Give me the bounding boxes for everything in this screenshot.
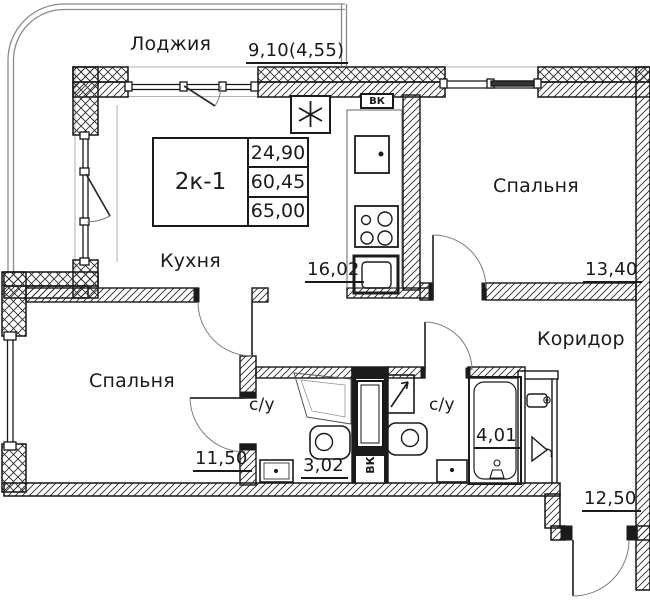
bedroom-right-area: 13,40 [583,259,642,283]
bedroom-right-label: Спальня [493,175,579,197]
shower-tray-icon [386,375,414,413]
switchboard-icon [527,394,550,407]
toilet-right-icon [387,423,427,455]
bedroom-left-area: 11,50 [193,448,252,472]
unit-code: 2к-1 [154,139,249,225]
kitchen-area: 16,02 [305,259,364,283]
corridor-area: 12,50 [582,488,641,512]
duct-label-kitchen: ВК [360,93,394,109]
loggia-dimension: 9,10(4,55) [246,40,348,64]
floor-plan-drawing [0,0,650,600]
hanger-icon [532,437,551,461]
living-area-value: 24,90 [249,139,307,168]
casement-leaf [86,174,110,216]
stove-icon [355,206,398,247]
bedroom-left-label: Спальня [89,370,175,392]
total-area-value: 65,00 [249,198,307,225]
title-block-areas: 24,90 60,45 65,00 [249,139,307,225]
bath-faucet-icon [490,460,504,478]
bathroom-left-label: с/у [249,395,275,415]
floor-plan: 2к-1 24,90 60,45 65,00 Лоджия 9,10(4,55)… [0,0,650,600]
washbasin-right-icon [437,460,467,482]
shower-cabin-icon [294,373,351,424]
title-block: 2к-1 24,90 60,45 65,00 [152,137,309,227]
area-value: 60,45 [249,168,307,197]
washbasin-left-icon [260,460,293,482]
bathroom-right-label: с/у [429,395,455,415]
duct-label-shaft: ВК [357,445,383,485]
bathroom-left-area: 3,02 [301,455,348,479]
bathroom-right-area: 4,01 [474,425,521,449]
closet-icons [527,394,551,461]
kitchen-sink-icon [355,136,389,173]
kitchen-label: Кухня [160,250,221,272]
fan-icon [291,96,330,133]
loggia-label: Лоджия [130,33,211,55]
corridor-label: Коридор [537,328,625,350]
